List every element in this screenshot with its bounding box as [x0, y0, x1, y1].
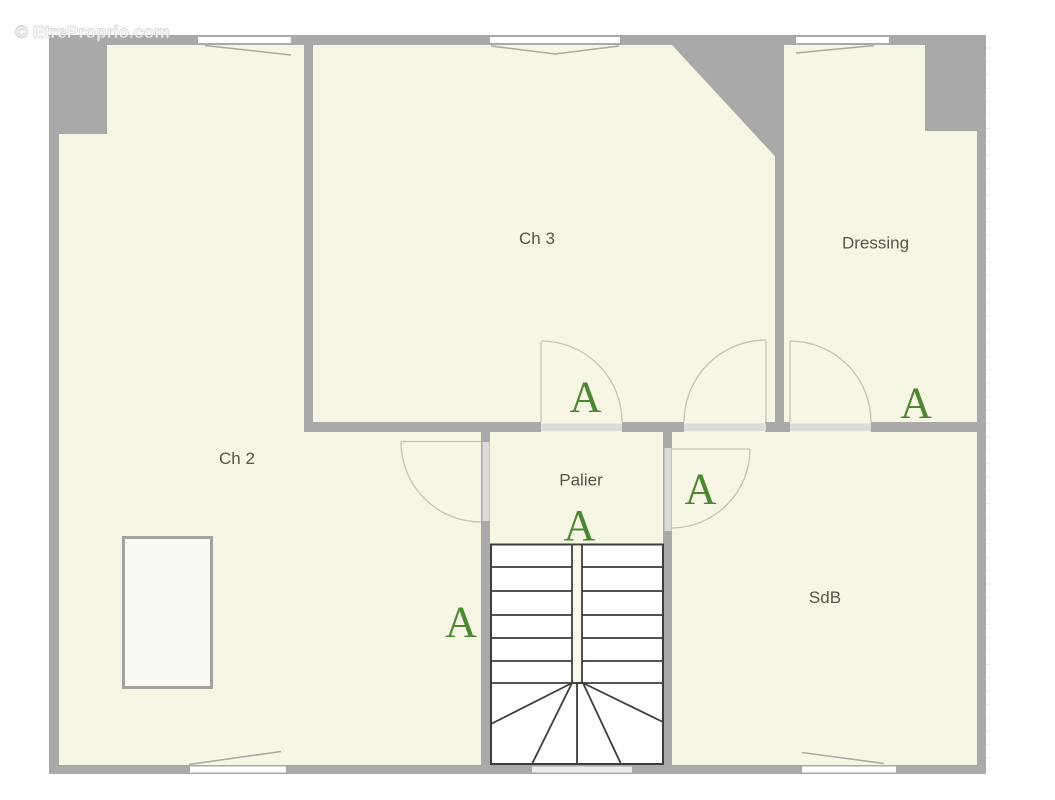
svg-text:Ch 3: Ch 3	[519, 229, 555, 248]
svg-text:SdB: SdB	[809, 588, 841, 607]
svg-text:A: A	[685, 465, 717, 514]
svg-text:A: A	[445, 598, 477, 647]
svg-text:Ch 2: Ch 2	[219, 449, 255, 468]
svg-text:A: A	[900, 379, 932, 428]
svg-text:© EtreProprio.com: © EtreProprio.com	[15, 22, 170, 42]
svg-text:A: A	[570, 373, 602, 422]
svg-text:Dressing: Dressing	[842, 234, 909, 253]
svg-text:A: A	[564, 501, 596, 550]
svg-text:Palier: Palier	[559, 471, 603, 490]
